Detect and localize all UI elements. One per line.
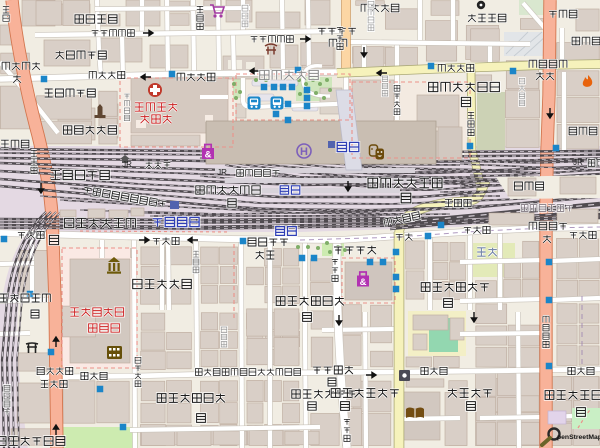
svg-text:penStreetMap: penStreetMap [557,434,600,441]
svg-text:JR: JR [217,168,227,177]
svg-text:&: & [205,150,212,161]
svg-text:JR: JR [573,158,583,167]
svg-text:&: & [360,277,367,288]
svg-text:H: H [300,146,308,158]
svg-text:JR: JR [122,160,132,169]
